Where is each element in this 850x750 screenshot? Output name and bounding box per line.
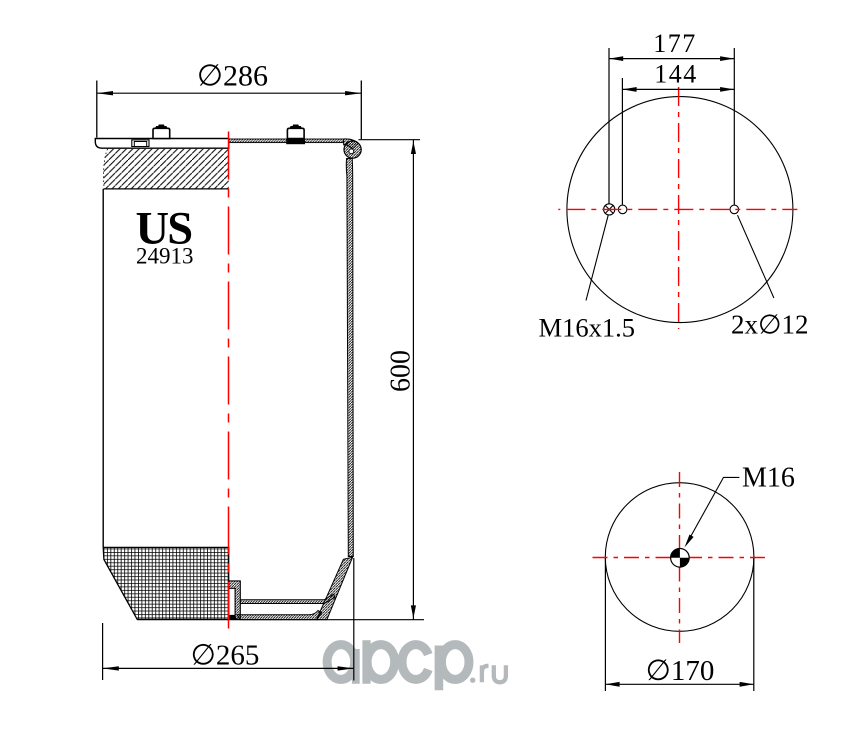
svg-text:M16: M16 (742, 463, 795, 494)
svg-text:177: 177 (653, 29, 697, 58)
svg-text:24913: 24913 (136, 244, 194, 269)
svg-text:2x∅12: 2x∅12 (731, 310, 809, 340)
svg-text:∅286: ∅286 (197, 60, 268, 93)
svg-text:144: 144 (654, 60, 698, 89)
svg-text:M16x1.5: M16x1.5 (539, 313, 635, 343)
svg-text:∅170: ∅170 (646, 655, 715, 687)
svg-text:600: 600 (386, 350, 417, 392)
svg-text:∅265: ∅265 (191, 640, 260, 672)
